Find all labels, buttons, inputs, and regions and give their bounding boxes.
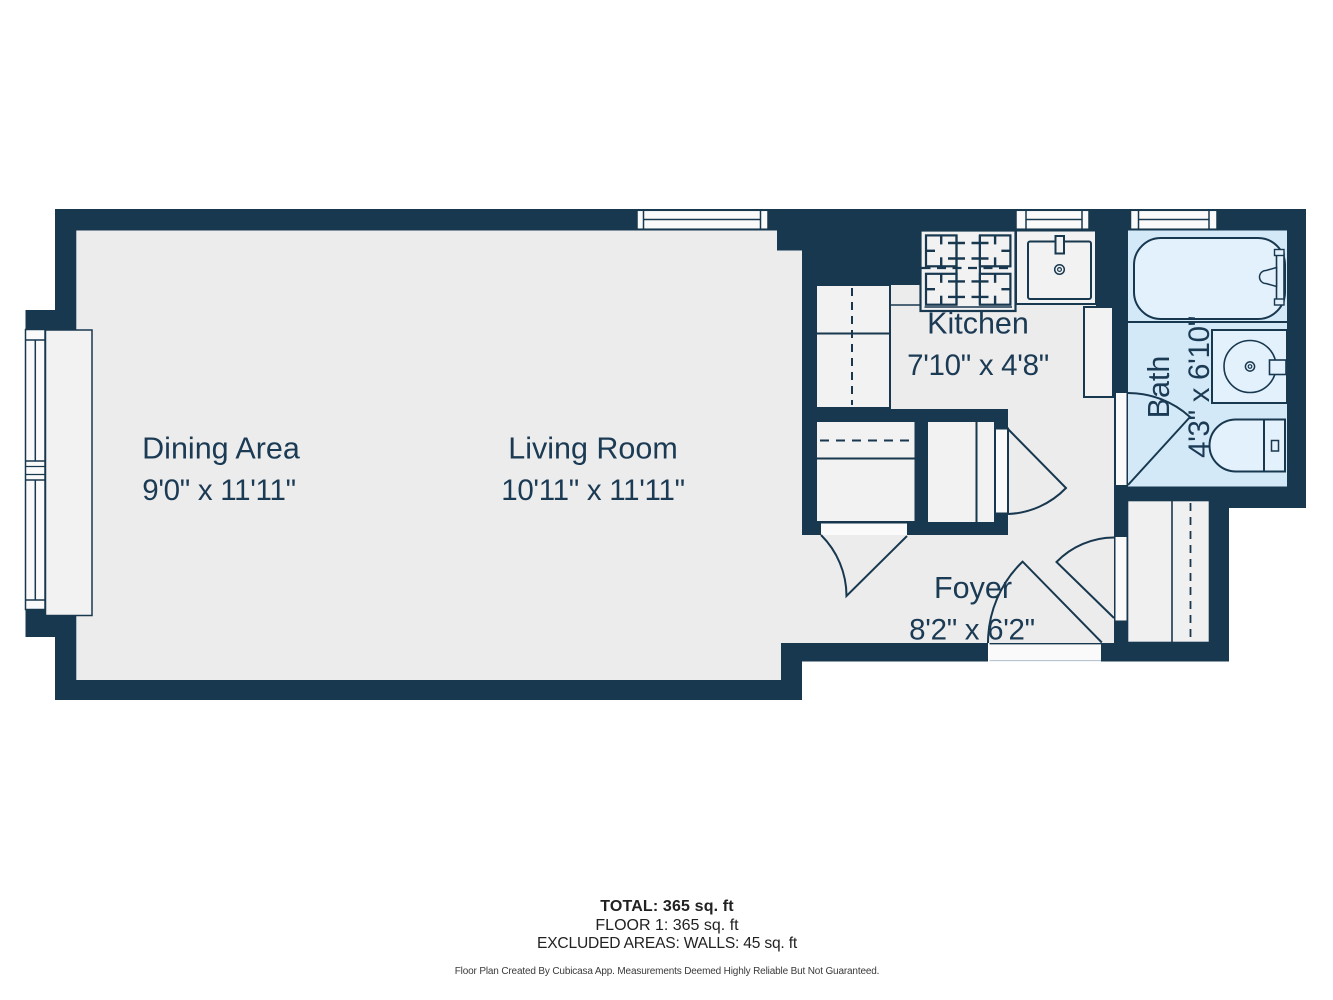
svg-text:7'10" x 4'8": 7'10" x 4'8" (907, 349, 1049, 382)
svg-text:8'2" x 6'2": 8'2" x 6'2" (909, 613, 1035, 646)
svg-text:TOTAL: 365 sq. ft: TOTAL: 365 sq. ft (600, 898, 734, 915)
svg-text:4'3" x 6'10": 4'3" x 6'10" (1183, 316, 1216, 458)
svg-text:EXCLUDED AREAS: WALLS: 45 sq.: EXCLUDED AREAS: WALLS: 45 sq. ft (537, 935, 798, 952)
svg-text:10'11" x 11'11": 10'11" x 11'11" (501, 474, 685, 507)
svg-text:Bath: Bath (1142, 356, 1176, 419)
svg-text:Floor Plan Created By Cubicasa: Floor Plan Created By Cubicasa App. Meas… (455, 966, 880, 977)
svg-text:Foyer: Foyer (934, 571, 1012, 605)
svg-text:Dining Area: Dining Area (142, 432, 300, 466)
svg-text:9'0" x 11'11": 9'0" x 11'11" (142, 474, 296, 507)
svg-text:Living Room: Living Room (508, 432, 678, 466)
svg-text:Kitchen: Kitchen (927, 307, 1029, 341)
svg-text:FLOOR 1: 365 sq. ft: FLOOR 1: 365 sq. ft (595, 917, 739, 934)
